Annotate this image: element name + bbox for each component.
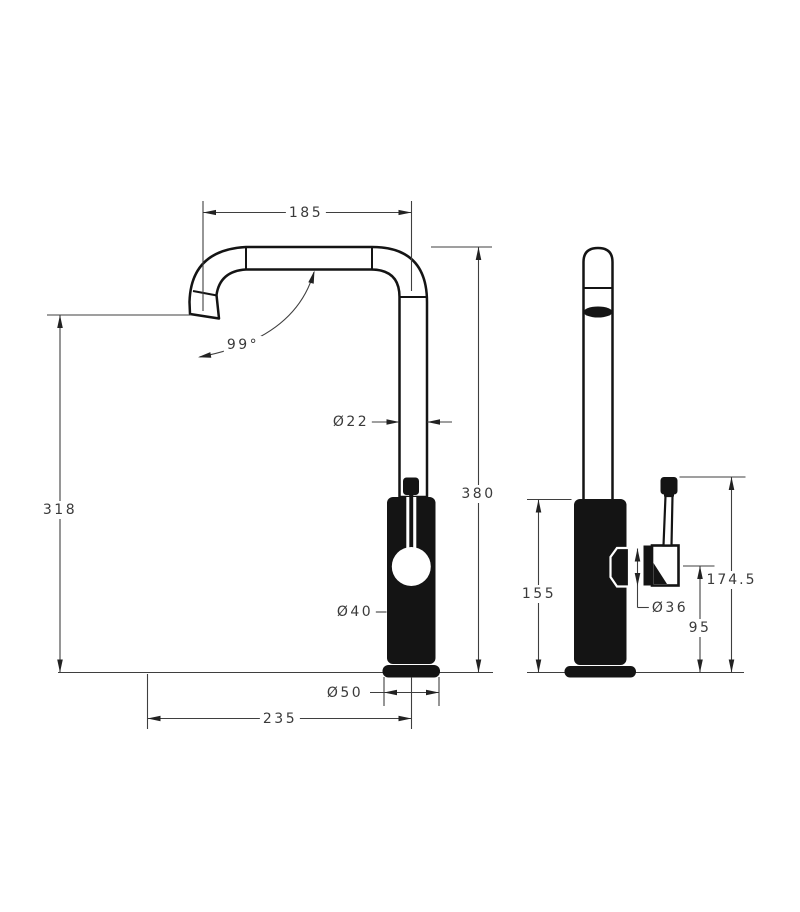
base-flange-side — [565, 666, 637, 678]
technical-drawing — [0, 0, 800, 912]
dim-base-diameter-label: Ø50 — [324, 684, 366, 702]
dim-outlet-reach-label: 235 — [260, 710, 300, 728]
spout-outline — [190, 247, 428, 497]
dim-outlet-height-label: 318 — [40, 501, 80, 519]
dim-handle-pivot-height-label: 95 — [686, 619, 715, 637]
body-dial-front — [392, 547, 431, 586]
dim-tube-diameter-label: Ø22 — [330, 413, 372, 431]
dim-body-height-label: 155 — [519, 585, 559, 603]
faucet-front-view — [190, 247, 441, 678]
handle-stem-front-lower — [409, 495, 413, 549]
dim-outlet-height — [47, 315, 191, 673]
base-flange-front — [383, 665, 441, 678]
dim-spout-reach-label: 185 — [286, 204, 326, 222]
drawing-canvas: 185 99° Ø22 380 318 Ø40 Ø50 235 155 Ø36 … — [0, 0, 800, 912]
tube-side — [584, 248, 613, 499]
dim-handle-top-height-label: 174.5 — [703, 571, 759, 589]
handle-knob-front — [403, 478, 419, 496]
dim-overall-height — [431, 247, 492, 673]
dim-spout-angle-label: 99° — [224, 336, 262, 354]
cartridge-cap-side — [611, 548, 630, 587]
dim-overall-height-label: 380 — [458, 485, 498, 503]
dim-base-diameter — [370, 677, 439, 729]
lever-knob-base-side — [664, 489, 674, 497]
lever-stem-side — [664, 496, 673, 546]
dim-cartridge-diameter-label: Ø36 — [649, 599, 691, 617]
dim-body-diameter-label: Ø40 — [334, 603, 376, 621]
spout-outlet-side — [584, 307, 613, 318]
